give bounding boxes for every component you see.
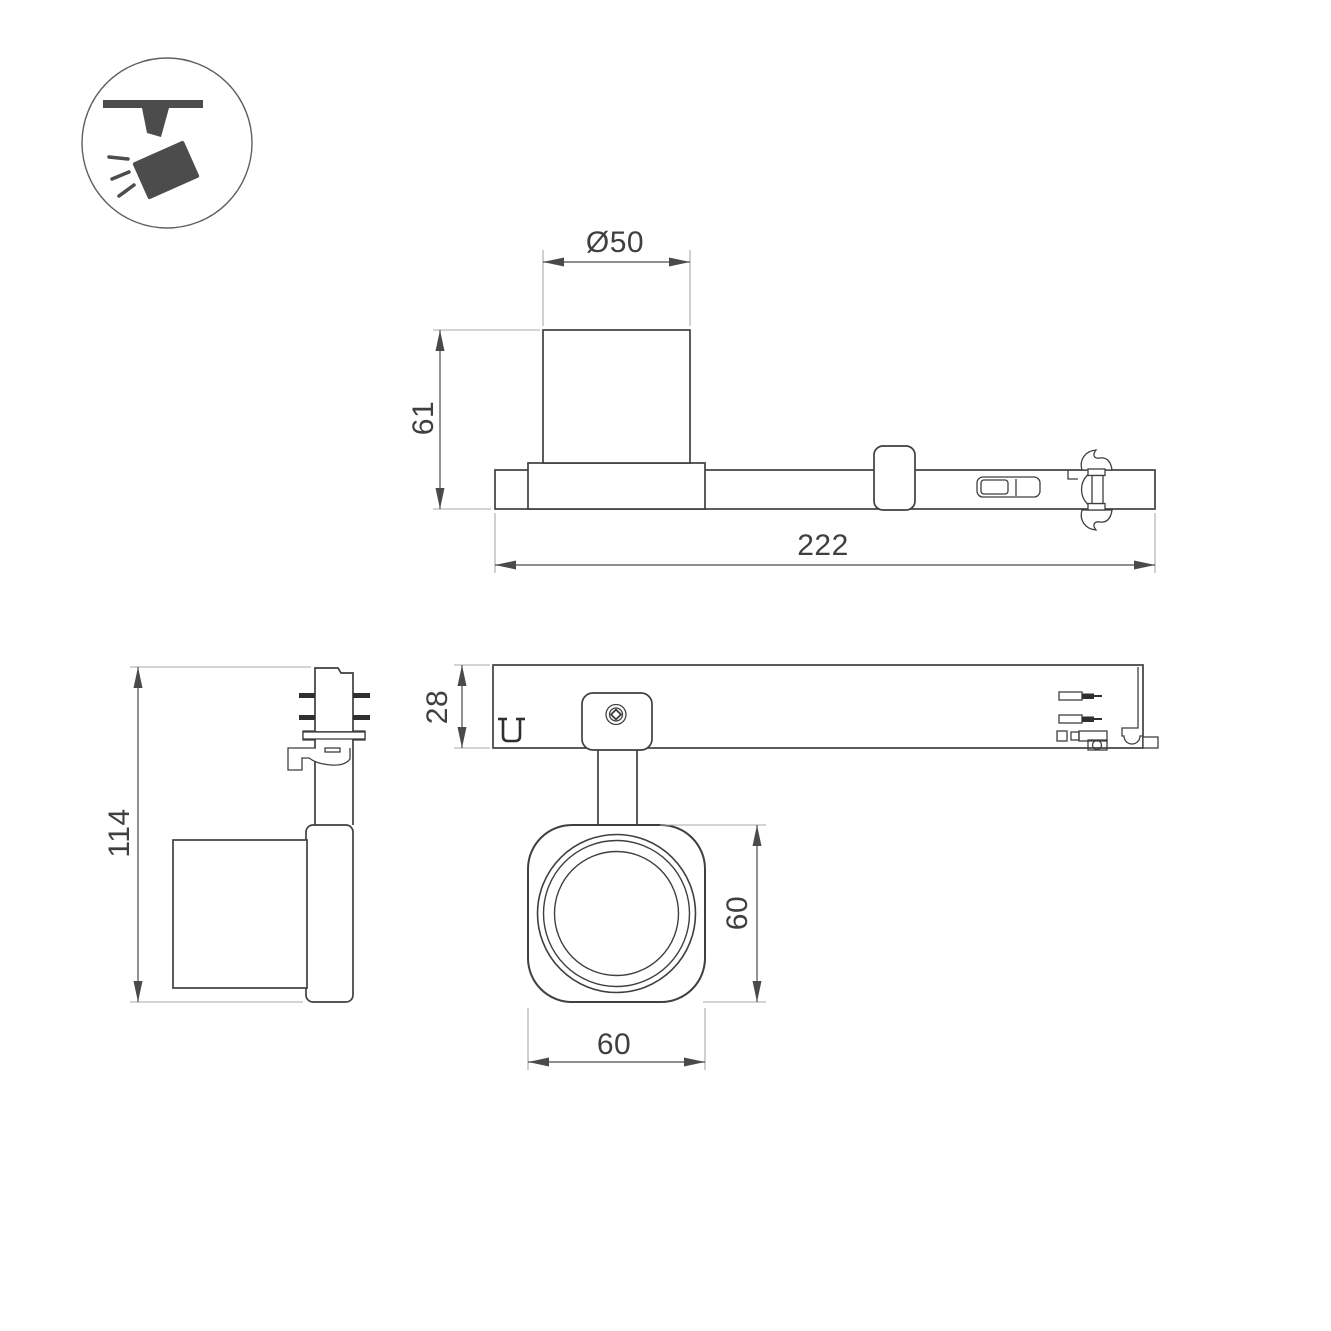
side-view-object	[495, 330, 1155, 530]
contact-pin	[299, 693, 315, 698]
arrowhead	[753, 825, 762, 846]
icon-ceiling-bar	[103, 100, 203, 108]
track-spotlight-icon	[82, 58, 252, 228]
lamp-base-side	[528, 463, 705, 509]
technical-drawing-page: Ø50 61 222 114	[0, 0, 1331, 1331]
arrowhead	[458, 727, 467, 748]
dim-label-head-height-60: 60	[721, 896, 754, 930]
track-light-dimension-drawing: Ø50 61 222 114	[0, 0, 1331, 1331]
lock-wing-top	[1081, 450, 1112, 470]
lock-bar-cap	[1088, 504, 1105, 511]
adapter-flange	[303, 732, 365, 739]
dim-label-height-61: 61	[407, 401, 440, 435]
contact-pin-tip	[1082, 717, 1094, 723]
track-adapter-end	[315, 668, 353, 732]
lamp-head-end	[173, 840, 307, 988]
lamp-body-end	[306, 825, 353, 1002]
dim-label-height-114: 114	[103, 808, 136, 857]
locking-hook	[288, 748, 350, 770]
dim-label-length-222: 222	[797, 529, 849, 562]
plan-view-object	[493, 665, 1158, 1002]
arrowhead	[528, 1058, 549, 1067]
contact-pin-tip	[1082, 694, 1094, 700]
dim-label-diameter-50: Ø50	[586, 226, 644, 259]
arrowhead	[669, 258, 690, 267]
arrowhead	[684, 1058, 705, 1067]
rail-end-tab	[1143, 737, 1158, 748]
lock-bar	[1092, 476, 1103, 504]
contact-pin	[299, 715, 315, 720]
dim-label-head-width-60: 60	[597, 1028, 631, 1061]
contact-pin	[353, 693, 370, 698]
lock-bar-cap	[1088, 469, 1105, 476]
arrowhead	[436, 330, 445, 351]
icon-circle-border	[82, 58, 252, 228]
arrowhead	[1134, 561, 1155, 570]
contact-pin	[353, 715, 370, 720]
arrowhead	[543, 258, 564, 267]
end-view-object	[173, 668, 370, 1002]
arrowhead	[753, 981, 762, 1002]
icon-light-ray	[109, 157, 128, 159]
arrowhead	[495, 561, 516, 570]
track-clip-side	[874, 446, 915, 510]
arrowhead	[134, 667, 143, 688]
dim-label-depth-28: 28	[421, 690, 454, 724]
lock-wing-bottom	[1081, 510, 1112, 530]
side-view-dimensions: Ø50 61 222	[407, 226, 1155, 573]
arrowhead	[134, 981, 143, 1002]
arrowhead	[436, 488, 445, 509]
arrowhead	[458, 665, 467, 686]
lamp-cylinder-side	[543, 330, 690, 463]
